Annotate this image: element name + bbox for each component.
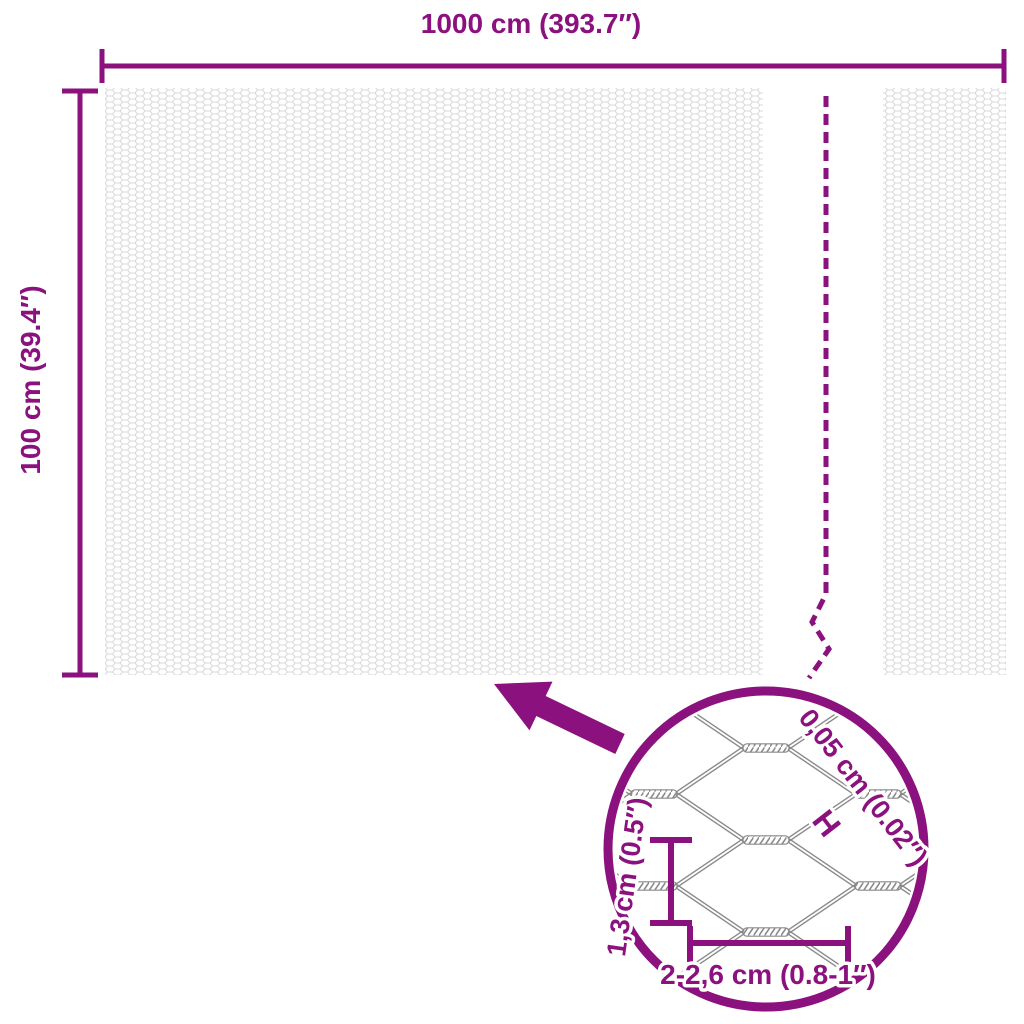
zoom-arrow-icon — [494, 682, 625, 754]
mesh-texture-main — [105, 88, 763, 675]
break-dashed-line — [809, 96, 829, 678]
height-dimension-label: 100 cm (39.4″) — [15, 285, 46, 474]
cell-width-label: 2-2,6 cm (0.8-1″) — [660, 959, 876, 990]
width-dimension-label: 1000 cm (393.7″) — [421, 8, 641, 39]
product-dimension-diagram: 1000 cm (393.7″) 100 cm (39.4″) 0,05 cm … — [0, 0, 1024, 1024]
diagram-canvas: 1000 cm (393.7″) 100 cm (39.4″) 0,05 cm … — [0, 0, 1024, 1024]
mesh-texture-right — [883, 88, 1006, 675]
width-dimension-line — [102, 49, 1004, 83]
height-dimension-line — [62, 91, 98, 675]
